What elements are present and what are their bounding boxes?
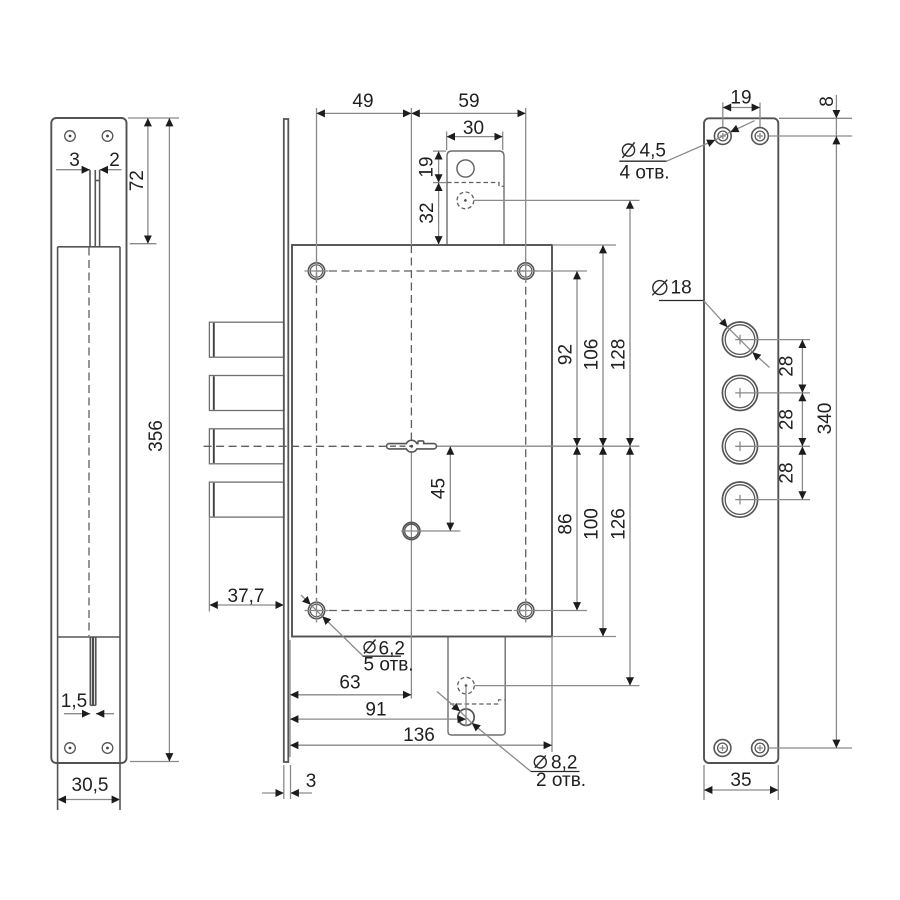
svg-text:32: 32 [417, 202, 438, 223]
svg-text:340: 340 [815, 403, 836, 435]
svg-text:8: 8 [817, 96, 838, 107]
svg-text:2: 2 [109, 150, 120, 171]
svg-text:4,5: 4,5 [640, 141, 666, 162]
svg-text:91: 91 [365, 700, 386, 721]
svg-text:35: 35 [730, 770, 751, 791]
svg-text:100: 100 [582, 508, 603, 540]
svg-text:18: 18 [671, 278, 692, 299]
svg-text:63: 63 [339, 673, 360, 694]
svg-text:19: 19 [730, 88, 751, 109]
svg-text:2 отв.: 2 отв. [536, 770, 586, 791]
svg-text:19: 19 [417, 156, 438, 177]
svg-text:3: 3 [306, 771, 317, 792]
svg-text:4 отв.: 4 отв. [620, 163, 670, 184]
svg-text:28: 28 [777, 356, 798, 377]
svg-text:45: 45 [429, 478, 450, 499]
svg-text:59: 59 [458, 91, 479, 112]
svg-text:30,5: 30,5 [72, 775, 109, 796]
svg-text:126: 126 [609, 508, 630, 540]
svg-text:136: 136 [403, 725, 435, 746]
svg-text:92: 92 [556, 344, 577, 365]
svg-text:49: 49 [352, 91, 373, 112]
svg-text:3: 3 [69, 150, 80, 171]
svg-text:1,5: 1,5 [61, 691, 87, 712]
svg-text:37,7: 37,7 [228, 586, 265, 607]
svg-text:28: 28 [777, 462, 798, 483]
svg-text:5 отв.: 5 отв. [364, 655, 414, 676]
svg-text:128: 128 [609, 339, 630, 371]
svg-text:86: 86 [556, 513, 577, 534]
svg-text:30: 30 [463, 118, 484, 139]
svg-text:106: 106 [582, 339, 603, 371]
svg-text:356: 356 [146, 420, 167, 452]
svg-text:28: 28 [777, 409, 798, 430]
svg-text:72: 72 [127, 170, 148, 191]
